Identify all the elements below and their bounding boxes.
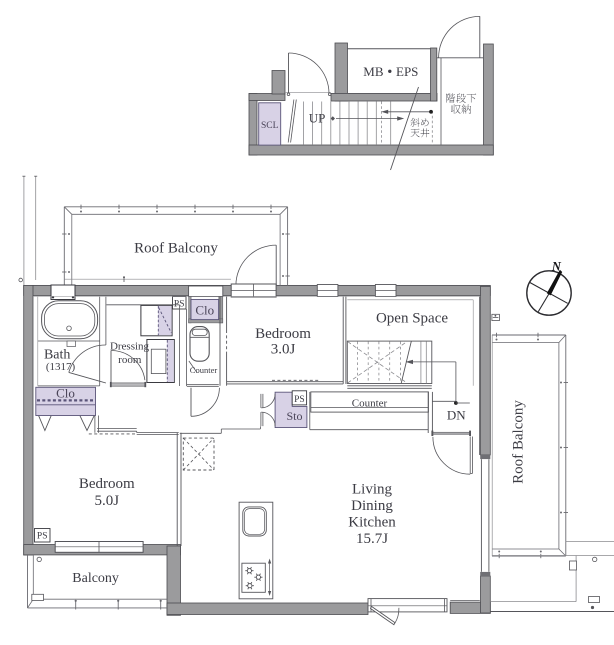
svg-text:Sto: Sto [286, 409, 302, 423]
svg-text:Living: Living [352, 482, 392, 498]
svg-text:Bedroom: Bedroom [255, 326, 311, 342]
svg-text:Dining: Dining [351, 498, 393, 514]
svg-text:PS: PS [294, 395, 305, 405]
svg-text:Clo: Clo [56, 386, 75, 401]
svg-text:SCL: SCL [261, 121, 279, 131]
svg-text:Counter: Counter [190, 365, 218, 375]
svg-text:Open Space: Open Space [376, 311, 448, 327]
svg-text:Kitchen: Kitchen [348, 515, 396, 531]
svg-text:N: N [551, 260, 562, 274]
svg-text:Roof Balcony: Roof Balcony [511, 400, 527, 484]
svg-text:3.0J: 3.0J [271, 342, 296, 358]
svg-text:PS: PS [37, 532, 48, 542]
svg-text:Bedroom: Bedroom [79, 476, 135, 492]
svg-text:MB: MB [363, 64, 384, 79]
svg-text:Roof Balcony: Roof Balcony [134, 241, 218, 257]
svg-text:Clo: Clo [195, 303, 214, 318]
svg-text:UP: UP [309, 111, 326, 126]
svg-text:EPS: EPS [396, 64, 418, 79]
svg-text:15.7J: 15.7J [356, 531, 388, 547]
svg-text:5.0J: 5.0J [95, 493, 120, 509]
svg-text:Balcony: Balcony [72, 571, 119, 586]
svg-text:Counter: Counter [352, 398, 388, 410]
svg-text:DN: DN [447, 408, 466, 423]
